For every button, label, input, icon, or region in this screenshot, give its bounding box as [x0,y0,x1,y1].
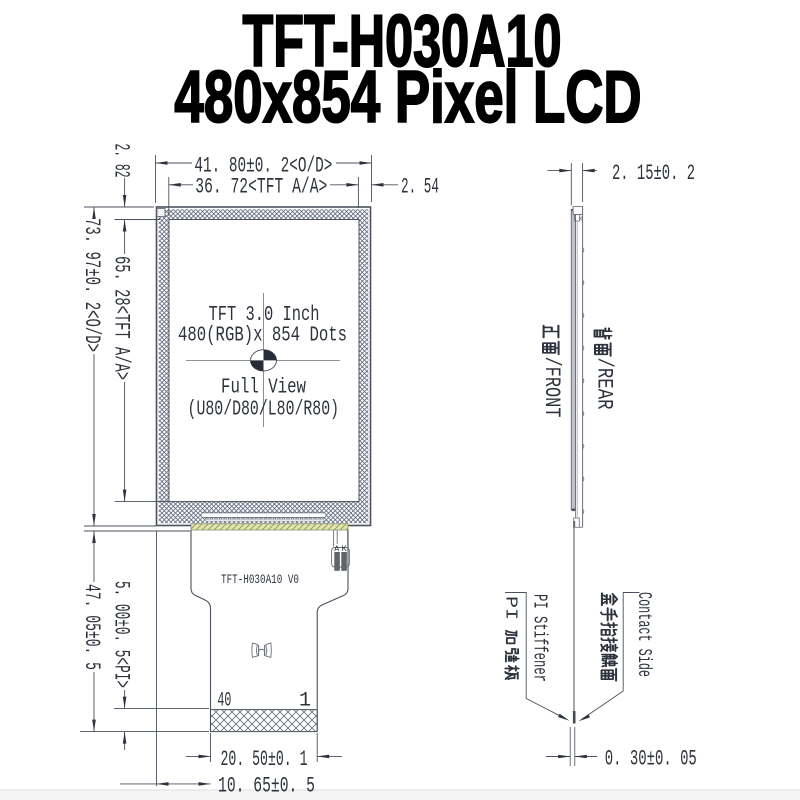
svg-text:Contact Side: Contact Side [633,592,655,677]
svg-text:/REAR: /REAR [592,358,618,410]
svg-text:2. 82: 2. 82 [109,144,135,178]
svg-text:20. 50±0. 1: 20. 50±0. 1 [221,746,308,772]
svg-text:47. 05±0. 5: 47. 05±0. 5 [79,584,105,670]
svg-text:2. 54: 2. 54 [401,173,439,199]
svg-text:36. 72<TFT A/A>: 36. 72<TFT A/A> [195,173,327,199]
svg-text:(U80/D80/L80/R80): (U80/D80/L80/R80) [188,398,340,421]
svg-text:1: 1 [299,690,311,713]
svg-text:10. 65±0. 5: 10. 65±0. 5 [218,773,315,799]
svg-text:PI: PI [502,596,521,620]
svg-text:Full View: Full View [221,377,306,400]
svg-text:73. 97±0. 2<O/D>: 73. 97±0. 2<O/D> [79,218,105,352]
svg-text:480(RGB)x 854 Dots: 480(RGB)x 854 Dots [178,325,347,348]
svg-text:2. 15±0. 2: 2. 15±0. 2 [612,160,695,186]
svg-text:PI Stiffener: PI Stiffener [529,594,551,682]
svg-text:A: A [334,545,339,554]
svg-text:0. 30±0. 05: 0. 30±0. 05 [605,746,697,772]
svg-text:40: 40 [217,690,231,713]
svg-text:TFT-H030A10 V0: TFT-H030A10 V0 [221,572,299,587]
svg-text:/FRONT: /FRONT [539,357,565,418]
svg-text:65. 28<TFT A/A>: 65. 28<TFT A/A> [109,256,135,380]
svg-text:5. 00±0. 5<PI>: 5. 00±0. 5<PI> [109,581,135,688]
svg-text:K: K [342,545,347,554]
